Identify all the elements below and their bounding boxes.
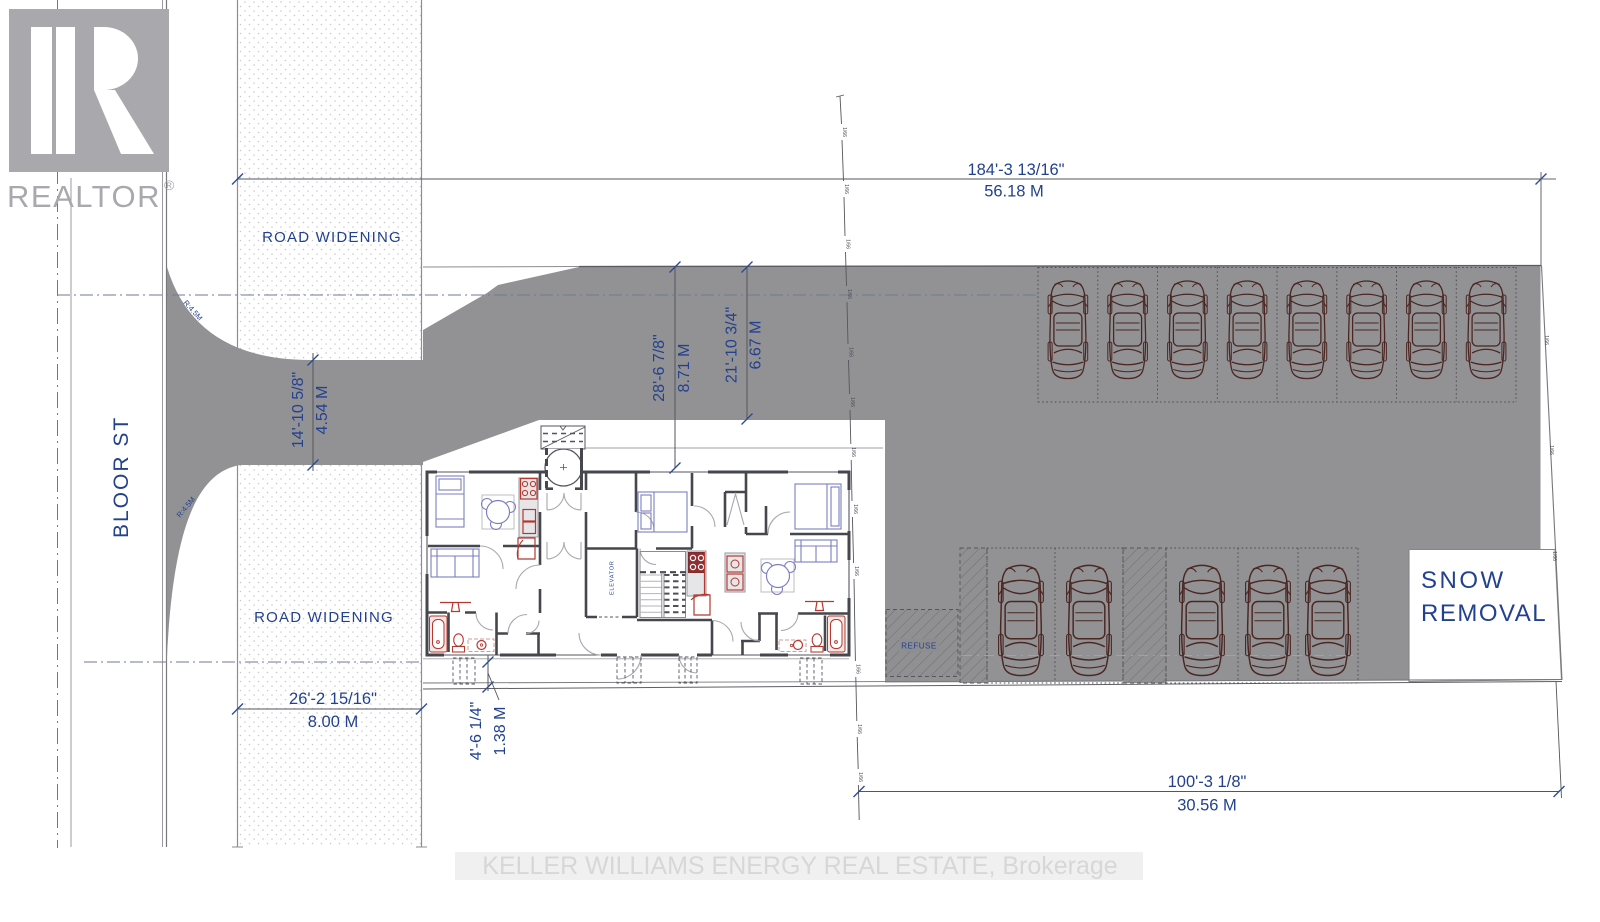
svg-text:BLOOR ST: BLOOR ST	[110, 416, 133, 538]
svg-text:1/66: 1/66	[849, 397, 855, 407]
svg-text:56.18 M: 56.18 M	[984, 183, 1044, 201]
svg-text:1/66: 1/66	[1551, 551, 1557, 561]
svg-text:®: ®	[164, 177, 175, 193]
svg-text:21'-10 3/4": 21'-10 3/4"	[724, 307, 741, 383]
svg-text:REFUSE: REFUSE	[901, 642, 936, 651]
svg-text:SNOW: SNOW	[1421, 567, 1506, 594]
svg-text:8.71 M: 8.71 M	[676, 344, 693, 393]
svg-text:ROAD WIDENING: ROAD WIDENING	[254, 609, 394, 626]
svg-text:1/66: 1/66	[856, 724, 862, 734]
svg-text:REALTOR: REALTOR	[7, 179, 161, 214]
svg-text:ELEVATOR: ELEVATOR	[610, 560, 616, 595]
svg-text:100'-3 1/8": 100'-3 1/8"	[1168, 773, 1247, 791]
svg-text:1.38 M: 1.38 M	[492, 707, 509, 756]
svg-text:1/66: 1/66	[852, 504, 858, 514]
svg-text:1/66: 1/66	[850, 447, 856, 457]
svg-text:1/66: 1/66	[841, 127, 847, 137]
svg-text:REMOVAL: REMOVAL	[1421, 600, 1547, 627]
svg-text:26'-2 15/16": 26'-2 15/16"	[289, 690, 377, 708]
svg-text:1/66: 1/66	[843, 184, 849, 194]
svg-text:1/66: 1/66	[846, 289, 852, 299]
svg-text:8.00 M: 8.00 M	[308, 713, 358, 731]
svg-text:6.67 M: 6.67 M	[748, 321, 765, 370]
svg-text:KELLER WILLIAMS ENERGY REAL ES: KELLER WILLIAMS ENERGY REAL ESTATE, Brok…	[482, 852, 1117, 880]
svg-text:14'-10 5/8": 14'-10 5/8"	[290, 372, 307, 448]
svg-text:184'-3 13/16": 184'-3 13/16"	[967, 161, 1064, 179]
svg-text:1/66: 1/66	[1543, 335, 1549, 345]
svg-text:1/66: 1/66	[845, 239, 851, 249]
svg-text:28'-6 7/8": 28'-6 7/8"	[651, 334, 668, 401]
svg-text:1/66: 1/66	[853, 566, 859, 576]
svg-text:4.54 M: 4.54 M	[314, 386, 331, 435]
svg-text:ROAD WIDENING: ROAD WIDENING	[262, 229, 402, 246]
svg-text:1/66: 1/66	[848, 347, 854, 357]
svg-text:1/66: 1/66	[1548, 445, 1554, 455]
svg-text:1/66: 1/66	[857, 772, 863, 782]
svg-text:1/66: 1/66	[855, 664, 861, 674]
svg-text:4'-6 1/4": 4'-6 1/4"	[468, 702, 485, 761]
svg-text:30.56 M: 30.56 M	[1177, 797, 1237, 815]
